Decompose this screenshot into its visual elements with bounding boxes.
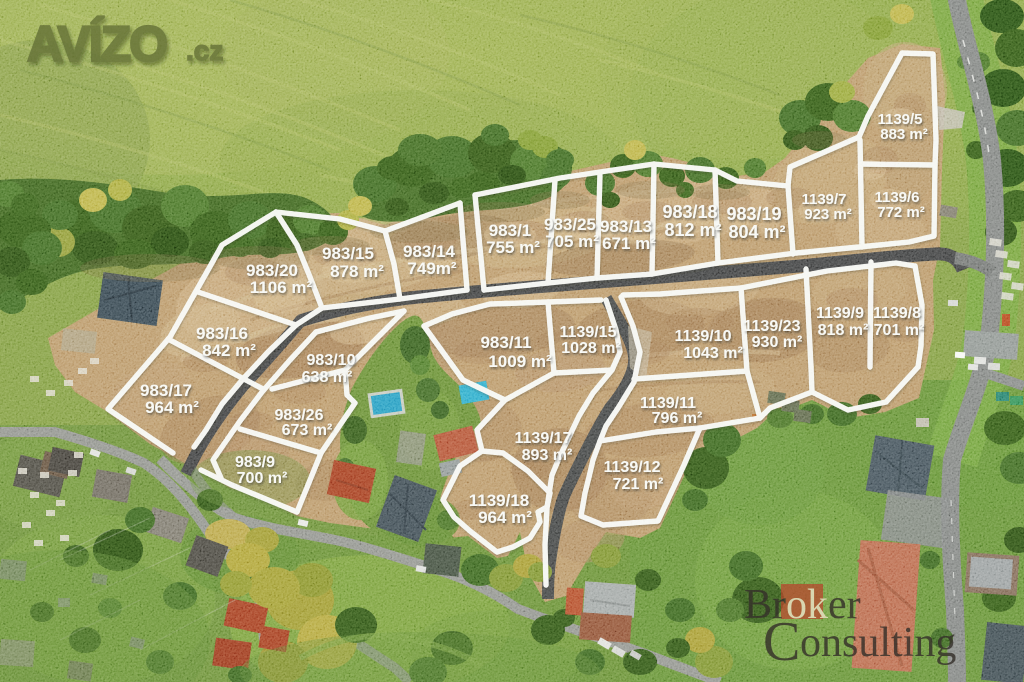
svg-text:onsulting: onsulting xyxy=(800,620,956,666)
svg-text:C: C xyxy=(763,611,800,673)
svg-text:AVÍZO: AVÍZO xyxy=(27,16,166,72)
svg-text:.cz: .cz xyxy=(186,35,223,66)
